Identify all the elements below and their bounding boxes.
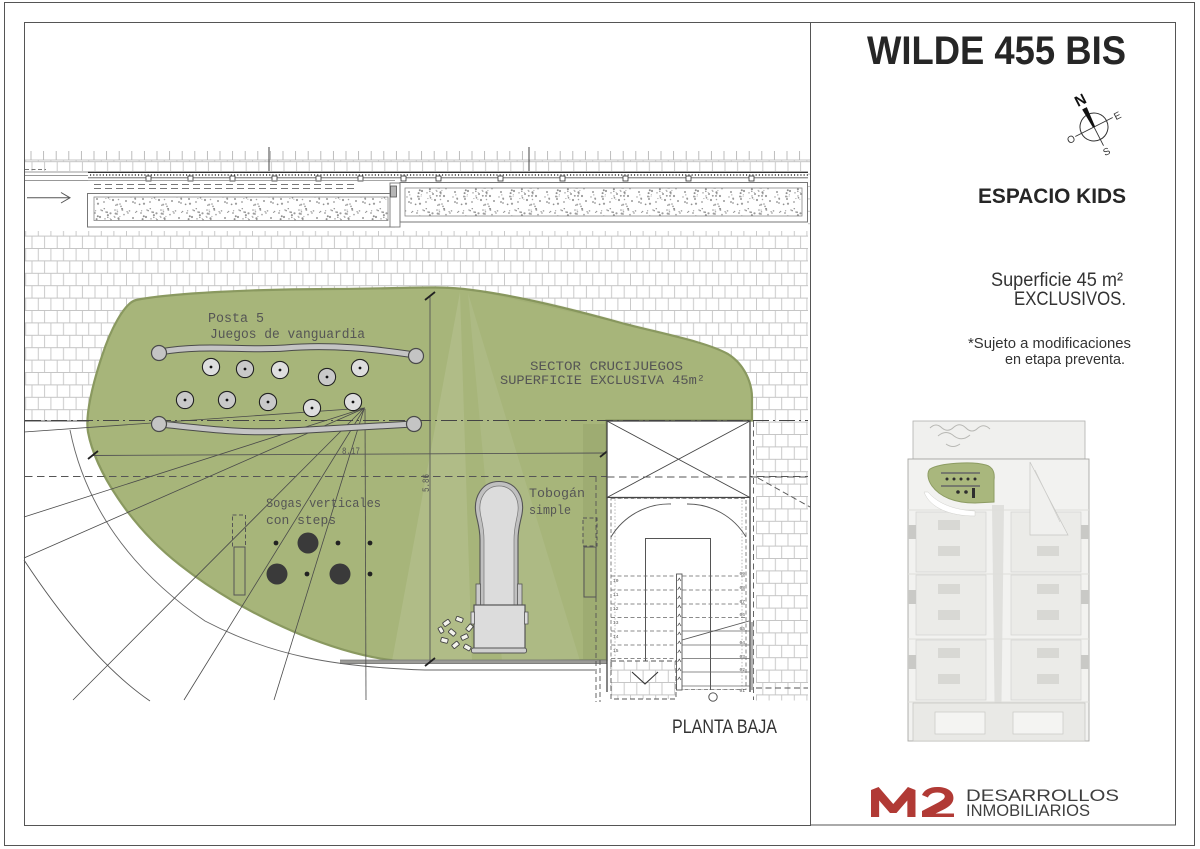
- svg-text:SUPERFICIE EXCLUSIVA 45m²: SUPERFICIE EXCLUSIVA 45m²: [500, 373, 705, 388]
- svg-text:15: 15: [613, 648, 619, 654]
- svg-text:06: 06: [739, 612, 745, 618]
- svg-text:PLANTA BAJA: PLANTA BAJA: [672, 717, 777, 738]
- svg-text:02: 02: [739, 667, 745, 673]
- svg-text:8.17: 8.17: [342, 446, 360, 458]
- svg-text:WILDE 455 BIS: WILDE 455 BIS: [867, 29, 1126, 73]
- svg-text:01: 01: [739, 688, 745, 694]
- svg-text:10: 10: [613, 578, 619, 584]
- svg-text:Superficie 45 m²: Superficie 45 m²: [991, 270, 1123, 291]
- svg-text:Tobogán: Tobogán: [529, 486, 585, 501]
- svg-text:03: 03: [739, 654, 745, 660]
- svg-text:05: 05: [739, 626, 745, 632]
- svg-text:09: 09: [739, 571, 745, 577]
- svg-text:Sogas verticales: Sogas verticales: [266, 496, 381, 511]
- svg-text:con steps: con steps: [266, 513, 336, 528]
- svg-text:SECTOR CRUCIJUEGOS: SECTOR CRUCIJUEGOS: [530, 359, 683, 374]
- svg-text:INMOBILIARIOS: INMOBILIARIOS: [966, 802, 1090, 820]
- svg-text:Posta 5: Posta 5: [208, 312, 264, 327]
- svg-text:*Sujeto a modificaciones: *Sujeto a modificaciones: [968, 335, 1131, 352]
- svg-text:Juegos de vanguardia: Juegos de vanguardia: [210, 328, 365, 343]
- svg-text:simple: simple: [529, 503, 571, 518]
- svg-text:04: 04: [739, 640, 745, 646]
- svg-text:14: 14: [613, 634, 619, 640]
- svg-text:11: 11: [613, 592, 619, 598]
- svg-text:12: 12: [613, 606, 619, 612]
- svg-text:ESPACIO KIDS: ESPACIO KIDS: [978, 185, 1126, 208]
- svg-text:13: 13: [613, 620, 619, 626]
- svg-text:en etapa preventa.: en etapa preventa.: [1005, 351, 1125, 368]
- svg-text:EXCLUSIVOS.: EXCLUSIVOS.: [1014, 289, 1126, 310]
- svg-text:07: 07: [739, 599, 745, 605]
- svg-text:08: 08: [739, 585, 745, 591]
